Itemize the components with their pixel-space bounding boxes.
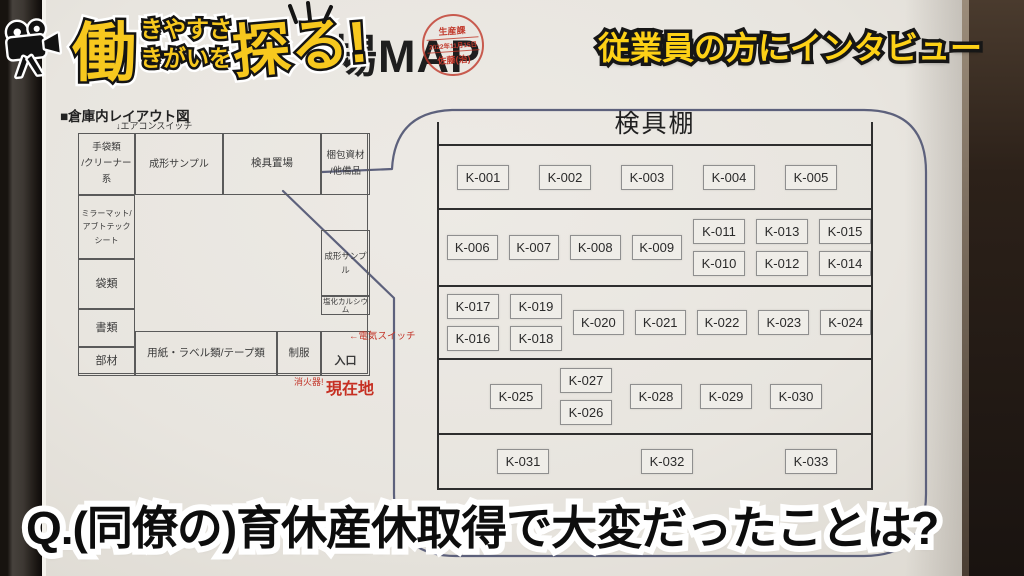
film-camera-icon [0,13,73,84]
shelf-slot-k-016: K-016 [447,326,499,351]
logo-main-char: 働働働 [72,2,136,94]
shelf-slot-k-002: K-002 [539,165,591,190]
shelf-slot-pair: K-013K-012 [756,219,808,276]
shelf-slot-k-021: K-021 [635,310,686,335]
tv-frame: 場MAP 生産課 2022年11月15日 佐藤(治) ■倉庫内レイアウト図 ↓エ… [0,0,1024,576]
shelf-slot-k-003: K-003 [621,165,673,190]
shelf-diagram: K-001K-002K-003K-004K-005K-006K-007K-008… [437,122,873,490]
doorframe-right [962,0,1024,576]
shelf-row-2: K-006K-007K-008K-009K-011K-010K-013K-012… [439,210,871,287]
speed-lines-icon [288,0,334,26]
aircon-switch-note: ↓エアコンスイッチ [116,119,192,132]
fire-extinguisher-note: 消火器! [294,375,324,388]
electric-switch-note: ←電気スイッチ [349,328,416,342]
warehouse-layout-map: 手袋類 /クリーナー系 ミラーマット/ アブトテックシート 袋類 書類 部材 成… [78,133,368,374]
shelf-slot-pair: K-017K-016 [447,294,499,351]
shelf-slot-pair: K-019K-018 [510,294,562,351]
shelf-slot-k-031: K-031 [497,449,549,474]
shelf-slot-k-006: K-006 [447,235,498,260]
shelf-slot-k-004: K-004 [703,165,755,190]
shelf-slot-k-029: K-029 [700,384,752,409]
shelf-slot-k-033: K-033 [785,449,837,474]
map-cell-packing-material: 梱包資材 /他備品 [321,133,370,195]
show-logo: 働働働 きやすさきやすさきやすさ きがいをきがいをきがいを 探る!探る!探る! [0,0,350,100]
map-cell-gloves: 手袋類 /クリーナー系 [78,133,135,195]
shelf-slot-k-025: K-025 [490,384,542,409]
shelf-slot-k-027: K-027 [560,368,612,393]
bottom-question-caption: Q.(同僚の)育休産休取得で大変だったことは? Q.(同僚の)育休産休取得で大変… [26,492,938,558]
shelf-slot-k-010: K-010 [693,251,745,276]
shelf-slot-k-014: K-014 [819,251,871,276]
map-cell-paper-labels-tape: 用紙・ラベル類/テープ類 [135,331,277,376]
map-cell-parts: 部材 [78,347,135,376]
shelf-slot-k-012: K-012 [756,251,808,276]
shelf-slot-k-011: K-011 [693,219,745,244]
shelf-slot-k-017: K-017 [447,294,499,319]
map-cell-mirror-mat: ミラーマット/ アブトテックシート [78,195,135,259]
shelf-slot-k-022: K-022 [697,310,748,335]
shelf-slot-k-026: K-026 [560,400,612,425]
shelf-slot-k-020: K-020 [573,310,624,335]
shelf-slot-k-013: K-013 [756,219,808,244]
shelf-slot-pair: K-015K-014 [819,219,871,276]
shelf-slot-k-005: K-005 [785,165,837,190]
stamp-department: 生産課 [438,23,466,38]
map-cell-documents: 書類 [78,309,135,347]
shelf-row-3: K-017K-016K-019K-018K-020K-021K-022K-023… [439,287,871,360]
logo-stacked-text: きやすさきやすさきやすさ きがいをきがいをきがいを [140,15,232,74]
shelf-slot-k-024: K-024 [820,310,871,335]
shelf-slot-k-001: K-001 [457,165,509,190]
stamp-date: 2022年11月15日 [427,36,480,54]
shelf-slot-k-009: K-009 [632,235,683,260]
bottom-caption-text: Q.(同僚の)育休産休取得で大変だったことは? [26,502,938,554]
map-cell-molding-sample-top: 成形サンプル [135,133,223,195]
shelf-slot-pair: K-011K-010 [693,219,745,276]
poster-shadow [905,0,962,576]
shelf-slot-k-030: K-030 [770,384,822,409]
shelf-slot-k-015: K-015 [819,219,871,244]
shelf-slot-k-028: K-028 [630,384,682,409]
shelf-slot-k-023: K-023 [758,310,809,335]
map-cell-bags: 袋類 [78,259,135,309]
shelf-row-4: K-025K-027K-026K-028K-029K-030 [439,360,871,435]
shelf-slot-k-007: K-007 [509,235,560,260]
map-cell-molding-sample-right: 成形サンプル [321,230,370,296]
top-caption-text: 従業員の方にインタビュー [598,30,982,66]
shelf-rows: K-001K-002K-003K-004K-005K-006K-007K-008… [439,146,871,490]
shelf-slot-pair: K-027K-026 [560,368,612,425]
map-cell-uniform: 制服 [277,331,321,376]
shelf-row-1: K-001K-002K-003K-004K-005 [439,146,871,210]
stamp-name: 佐藤(治) [437,52,471,67]
top-right-caption: 従業員の方にインタビュー 従業員の方にインタビュー [598,23,982,69]
shelf-slot-k-032: K-032 [641,449,693,474]
shelf-title: 検具棚 [437,104,873,140]
shelf-slot-k-019: K-019 [510,294,562,319]
map-cell-calcium-chloride: 塩化カルシウム [321,296,370,315]
shelf-row-5: K-031K-032K-033 [439,435,871,490]
shelf-slot-k-008: K-008 [570,235,621,260]
map-cell-inspection-tool-area: 検具置場 [223,133,321,195]
shelf-slot-k-018: K-018 [510,326,562,351]
current-location-note: 現在地 [326,375,374,399]
